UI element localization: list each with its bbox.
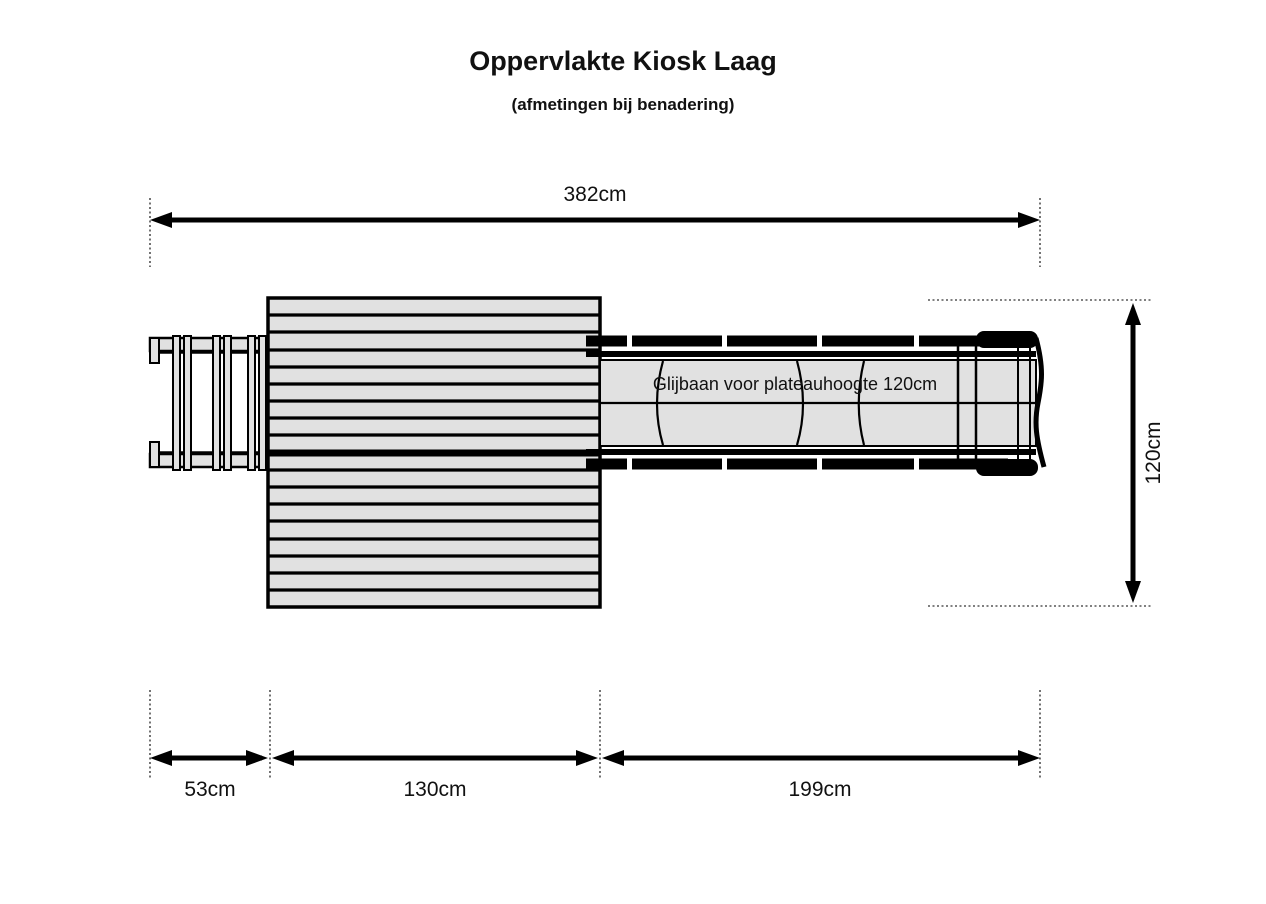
total-width-dimension: 382cm	[150, 183, 1040, 267]
ladder-rung	[184, 336, 191, 470]
ladder-width-dimension: 53cm	[150, 750, 268, 801]
arrowhead-left	[150, 212, 172, 228]
ladder-rung	[173, 336, 180, 470]
ladder-top-view	[150, 336, 268, 470]
ladder-end-cap	[150, 442, 159, 467]
slide-length-label: 199cm	[788, 778, 851, 801]
slide-rail-top	[586, 335, 1036, 354]
slide-top-view: Glijbaan voor plateauhoogte 120cm	[586, 331, 1044, 476]
ladder-rung	[248, 336, 255, 470]
slide-length-dimension: 199cm	[602, 750, 1040, 801]
arrowhead-up	[1125, 303, 1141, 325]
ladder-rung	[259, 336, 266, 470]
arrowhead-right	[1018, 212, 1040, 228]
ladder-rung	[213, 336, 220, 470]
ladder-end-cap	[150, 338, 159, 363]
ladder-width-label: 53cm	[184, 778, 235, 801]
platform-top-view	[268, 298, 600, 607]
bottom-dimensions: 53cm 130cm 199cm	[150, 690, 1040, 801]
slide-rail-bottom	[586, 452, 1036, 470]
diagram-subtitle: (afmetingen bij benadering)	[512, 95, 735, 114]
diagram-canvas: Oppervlakte Kiosk Laag (afmetingen bij b…	[0, 0, 1266, 904]
slide-annotation: Glijbaan voor plateauhoogte 120cm	[653, 374, 937, 394]
arrowhead-down	[1125, 581, 1141, 603]
diagram-title: Oppervlakte Kiosk Laag	[469, 46, 777, 76]
platform-width-label: 130cm	[403, 778, 466, 801]
depth-label: 120cm	[1142, 421, 1165, 484]
platform-width-dimension: 130cm	[272, 750, 598, 801]
total-width-label: 382cm	[563, 183, 626, 206]
ladder-rung	[224, 336, 231, 470]
kiosk-surface-diagram: Oppervlakte Kiosk Laag (afmetingen bij b…	[0, 0, 1266, 904]
